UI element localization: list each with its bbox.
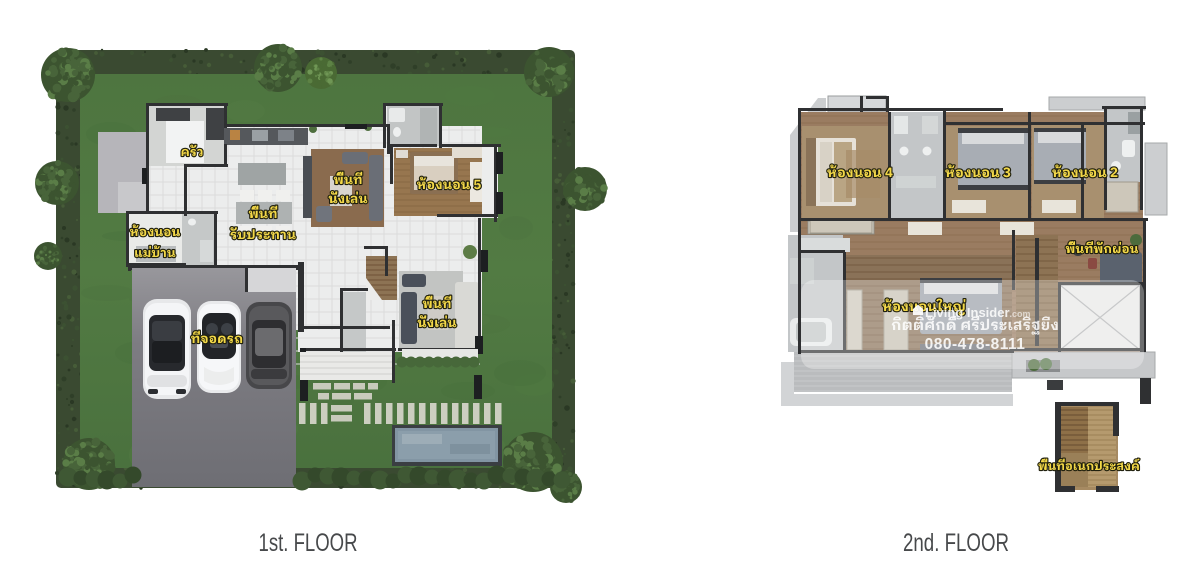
svg-text:1st. FLOOR: 1st. FLOOR [259, 529, 358, 557]
svg-text:080-478-8111: 080-478-8111 [925, 336, 1026, 353]
svg-text:2nd. FLOOR: 2nd. FLOOR [903, 529, 1009, 557]
